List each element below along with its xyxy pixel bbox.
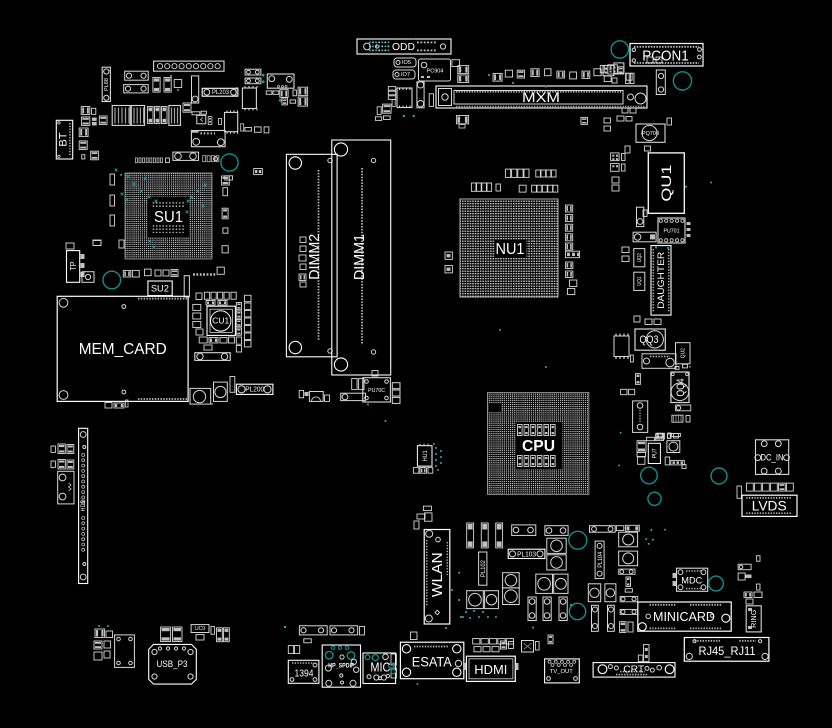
svg-text:ODD: ODD <box>392 42 415 53</box>
svg-text:TP: TP <box>69 262 78 271</box>
svg-text:PL88: PL88 <box>104 78 110 91</box>
svg-text:IO7: IO7 <box>401 72 410 78</box>
svg-text:CU1: CU1 <box>212 317 230 326</box>
svg-text:SU1: SU1 <box>154 209 183 226</box>
svg-text:WLAN: WLAN <box>430 552 446 597</box>
svg-text:PU701: PU701 <box>664 228 680 234</box>
svg-text:CRT: CRT <box>623 664 645 676</box>
svg-text:QU1: QU1 <box>659 165 674 202</box>
svg-text:IO5: IO5 <box>402 60 411 66</box>
svg-text:BT: BT <box>58 132 70 146</box>
svg-text:ESATA: ESATA <box>412 653 453 669</box>
svg-text:DC_IN: DC_IN <box>761 453 784 463</box>
svg-text:DIMM1: DIMM1 <box>352 234 368 280</box>
svg-text:HU1: HU1 <box>423 450 429 462</box>
svg-text:PL102: PL102 <box>481 559 487 577</box>
svg-text:PU70C: PU70C <box>368 388 385 394</box>
svg-text:HP_SPDIF: HP_SPDIF <box>328 663 354 669</box>
svg-text:SU2: SU2 <box>151 284 169 295</box>
svg-text:DIMM2: DIMM2 <box>307 234 323 280</box>
svg-text:PL104: PL104 <box>598 551 604 568</box>
svg-text:MINICARD: MINICARD <box>653 610 715 624</box>
svg-text:RING: RING <box>751 610 758 628</box>
svg-text:1394: 1394 <box>295 668 314 680</box>
svg-text:MXM: MXM <box>522 90 560 105</box>
svg-text:USB_P3: USB_P3 <box>157 659 188 670</box>
svg-text:PL203: PL203 <box>212 90 230 96</box>
svg-text:QQ4: QQ4 <box>675 379 687 397</box>
svg-text:HDMI: HDMI <box>474 662 507 677</box>
svg-text:PU7: PU7 <box>652 448 658 459</box>
svg-text:PCON1: PCON1 <box>642 48 689 64</box>
svg-text:MEM_CARD: MEM_CARD <box>79 341 167 358</box>
svg-text:LVDS: LVDS <box>752 498 787 514</box>
svg-text:NU1: NU1 <box>496 241 525 258</box>
svg-text:TV_OUT: TV_OUT <box>550 669 574 675</box>
svg-text:QQ3: QQ3 <box>640 334 659 346</box>
svg-text:MDC: MDC <box>681 576 702 587</box>
svg-text:PC904: PC904 <box>427 68 444 74</box>
svg-text:UQ1: UQ1 <box>637 277 643 286</box>
svg-text:PL103: PL103 <box>517 551 536 558</box>
svg-text:MIC: MIC <box>370 660 390 674</box>
svg-text:HDD: HDD <box>81 499 87 512</box>
svg-text:CPU: CPU <box>522 438 555 455</box>
svg-text:QU2: QU2 <box>681 348 687 358</box>
svg-text:UC9: UC9 <box>195 626 205 632</box>
svg-text:DAUGHTER: DAUGHTER <box>656 251 666 309</box>
svg-text:RJ45_RJ11: RJ45_RJ11 <box>699 644 756 658</box>
svg-text:UQ2: UQ2 <box>637 253 643 262</box>
svg-text:PQ700: PQ700 <box>642 131 659 137</box>
svg-text:PL200: PL200 <box>245 387 264 394</box>
